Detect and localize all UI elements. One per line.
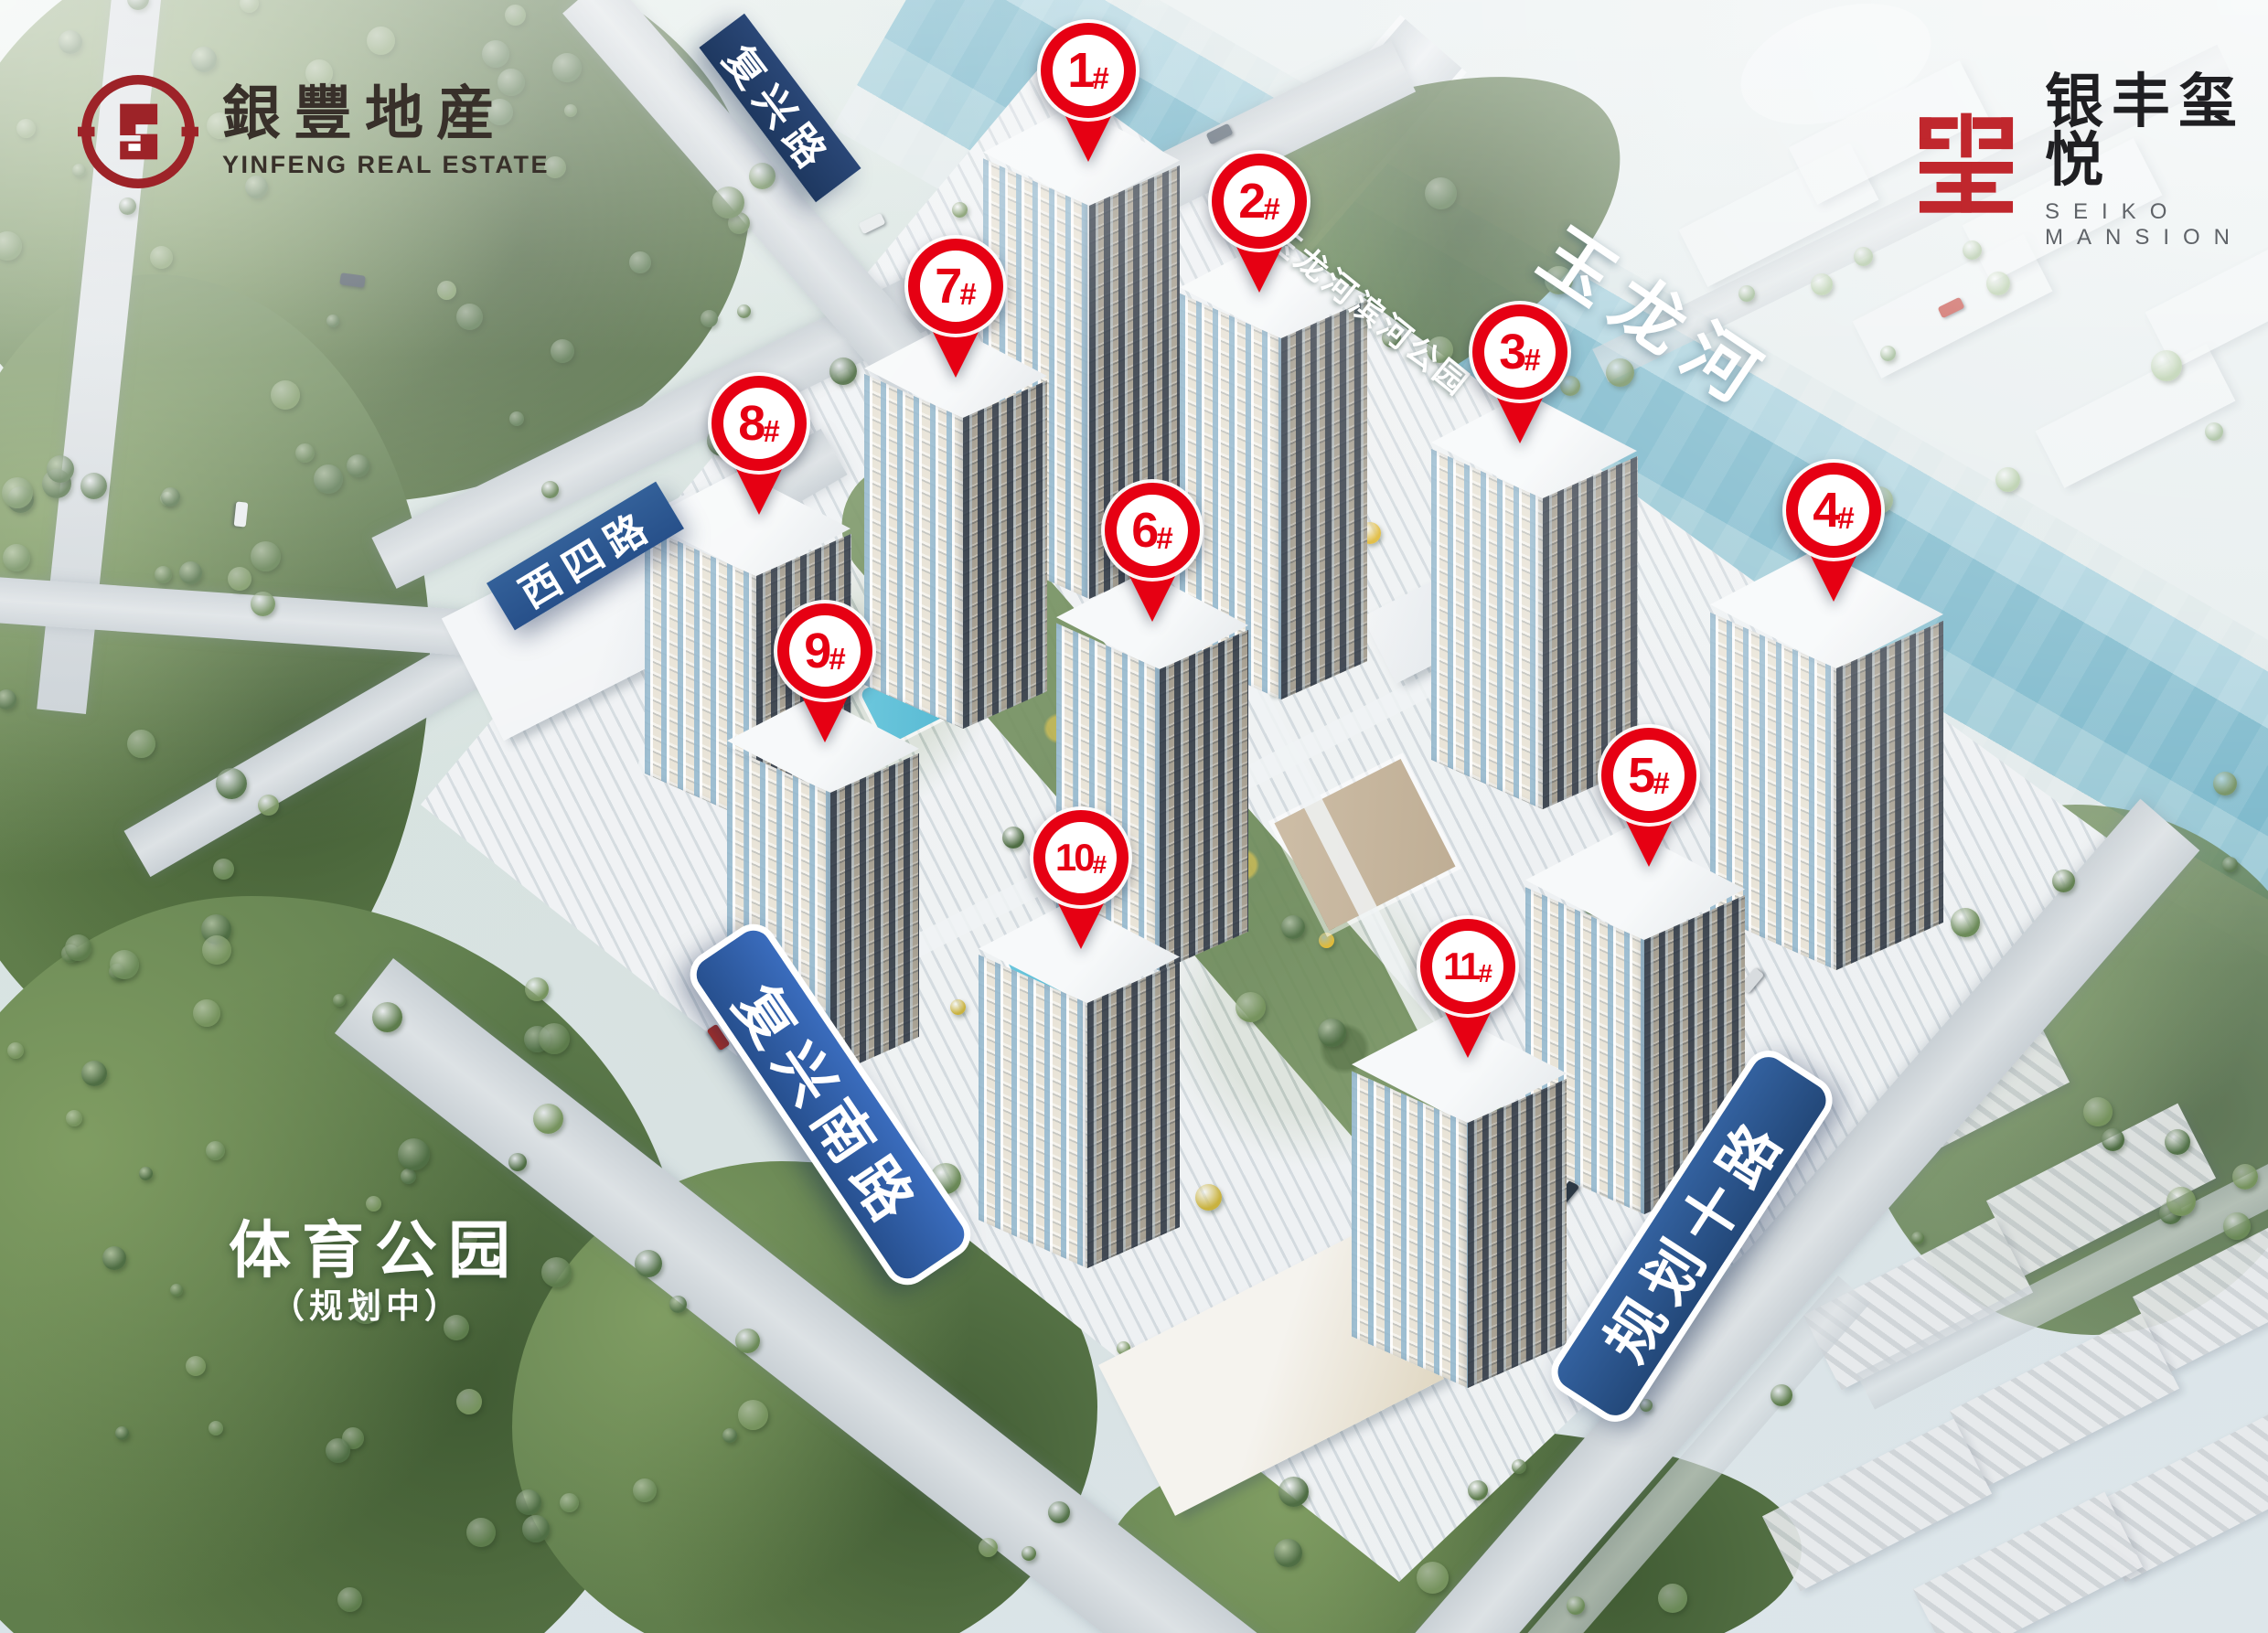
tree	[505, 5, 526, 26]
tree	[119, 197, 136, 215]
tree	[2, 477, 33, 508]
tree	[1811, 273, 1833, 295]
tree	[1995, 467, 2020, 492]
tree	[633, 1478, 657, 1502]
building-pin-3[interactable]: 3#	[1472, 304, 1567, 449]
sports-park-label: 体育公园	[229, 1200, 521, 1290]
tree	[2083, 1097, 2113, 1126]
tree	[1425, 177, 1457, 209]
building-pin-7[interactable]: 7#	[908, 239, 1003, 383]
tower-facade-right	[1281, 300, 1367, 699]
tower-facade-right	[1087, 962, 1180, 1268]
pin-hash-suffix: #	[1156, 523, 1172, 553]
tree	[213, 859, 234, 880]
tree	[1236, 992, 1266, 1022]
tree	[952, 202, 968, 218]
tower-facade-left	[1431, 449, 1543, 809]
tree	[456, 304, 483, 330]
tree	[251, 592, 275, 616]
pin-hash-suffix: #	[1093, 852, 1107, 878]
tree	[1854, 247, 1873, 266]
tower-10	[979, 901, 1180, 1270]
tree	[533, 1104, 563, 1134]
tree	[437, 281, 456, 300]
tower-facade-right	[1468, 1079, 1567, 1388]
tree	[179, 561, 202, 584]
tree	[1606, 358, 1634, 387]
tree	[81, 1061, 107, 1086]
building-pin-8[interactable]: 8#	[711, 376, 807, 520]
tree	[1512, 1459, 1526, 1474]
building-pin-11[interactable]: 11#	[1420, 919, 1515, 1063]
tree	[1911, 1232, 1924, 1244]
tree	[466, 1518, 496, 1547]
pin-hash-suffix: #	[1524, 345, 1540, 375]
building-pin-label: 1#	[1067, 46, 1108, 95]
tower-facade	[979, 1003, 1180, 1268]
tree	[2232, 1164, 2258, 1190]
tree	[206, 1141, 225, 1160]
pin-number: 7	[935, 261, 959, 311]
tree	[66, 1110, 82, 1126]
pin-circle: 5#	[1601, 728, 1696, 823]
building-pin-6[interactable]: 6#	[1105, 483, 1200, 627]
tree	[749, 163, 776, 189]
tree	[2151, 350, 2182, 381]
pin-circle: 9#	[777, 603, 872, 699]
building-pin-label: 7#	[935, 261, 976, 311]
tree	[541, 1257, 572, 1287]
tree	[1771, 1384, 1792, 1406]
tree	[737, 304, 751, 318]
pin-number: 5	[1628, 751, 1653, 800]
pin-number: 1	[1067, 46, 1092, 95]
pin-number: 9	[804, 626, 829, 676]
tree	[2102, 1128, 2124, 1151]
aerial-masterplan-rendering: 复兴路 西四路 复兴南路 规划十路 玉龙河 玉龙河滨河公园 体育公园 （规划中）…	[0, 0, 2268, 1633]
tower-11	[1352, 1013, 1567, 1390]
building-pin-label: 5#	[1628, 751, 1669, 800]
tree	[669, 1296, 687, 1313]
building-pin-label: 2#	[1238, 176, 1279, 226]
building-pin-10[interactable]: 10#	[1033, 810, 1129, 955]
building-pin-label: 9#	[804, 626, 845, 676]
tree	[170, 1284, 183, 1297]
building-pin-label: 4#	[1813, 486, 1854, 535]
tree	[1880, 346, 1896, 361]
tree	[541, 481, 559, 498]
project-name-en: SEIKO MANSION	[2045, 199, 2268, 251]
tower-facade-right	[830, 753, 919, 1076]
building-pin-label: 8#	[738, 399, 779, 448]
tree	[65, 934, 91, 961]
pin-hash-suffix: #	[829, 644, 845, 674]
tree	[722, 1428, 737, 1443]
tree	[139, 1167, 153, 1180]
tree	[735, 1329, 760, 1353]
tree	[333, 994, 346, 1007]
tree	[251, 541, 281, 571]
tree	[2223, 1212, 2251, 1240]
tree	[712, 187, 744, 219]
tree	[629, 251, 651, 273]
building-pin-label: 6#	[1131, 506, 1172, 555]
tree	[2166, 1187, 2196, 1216]
tree	[1274, 1539, 1302, 1567]
tree	[564, 104, 577, 117]
pin-number: 6	[1131, 506, 1156, 555]
tree	[186, 1356, 206, 1376]
tree	[367, 27, 395, 55]
tree	[1738, 285, 1755, 302]
tree	[202, 935, 231, 965]
tree	[295, 443, 315, 463]
seiko-mansion-seal-icon	[1913, 109, 2019, 215]
building-pin-label: 11#	[1443, 946, 1492, 987]
tree	[1281, 915, 1305, 939]
tree	[314, 464, 343, 494]
tree	[1022, 1546, 1036, 1561]
tree	[1195, 1184, 1222, 1211]
tower-facade-right	[963, 380, 1047, 729]
tree	[155, 566, 172, 583]
tree	[1986, 272, 2010, 295]
project-logo: 银丰玺悦 SEIKO MANSION	[1913, 73, 2268, 251]
tree	[456, 1389, 482, 1414]
building-pin-2[interactable]: 2#	[1212, 154, 1307, 298]
tree	[1951, 908, 1980, 937]
tree	[508, 1153, 527, 1171]
tree	[1002, 827, 1024, 849]
tree	[516, 1489, 541, 1515]
tree	[47, 455, 74, 483]
tree	[398, 1138, 430, 1170]
pin-circle: 7#	[908, 239, 1003, 334]
tree	[522, 1515, 550, 1542]
pin-hash-suffix: #	[959, 279, 976, 309]
tree	[1567, 1596, 1585, 1615]
tree	[560, 1493, 579, 1512]
tree	[635, 1250, 662, 1277]
developer-name-cn: 銀豐地産	[222, 85, 550, 144]
pin-number: 3	[1499, 327, 1524, 377]
tree	[337, 1587, 362, 1612]
tower-facade-left	[864, 374, 963, 729]
tree	[738, 1400, 768, 1430]
tree	[1640, 1399, 1653, 1412]
pin-circle: 3#	[1472, 304, 1567, 400]
tower-7	[864, 325, 1047, 731]
tree	[552, 53, 582, 82]
tree	[701, 310, 718, 327]
tree	[950, 999, 966, 1015]
tree	[829, 358, 857, 385]
pin-circle: 10#	[1033, 810, 1129, 905]
tree	[1468, 1480, 1488, 1500]
pin-circle: 4#	[1786, 463, 1881, 558]
pin-circle: 1#	[1041, 23, 1136, 118]
project-name-cn: 银丰玺悦	[2045, 73, 2268, 190]
tree	[1417, 1562, 1449, 1594]
pin-circle: 2#	[1212, 154, 1307, 249]
pin-number: 4	[1813, 486, 1837, 535]
developer-name-en: YINFENG REAL ESTATE	[222, 151, 550, 179]
tree	[326, 1438, 350, 1463]
tree	[191, 47, 217, 72]
pin-number: 10	[1055, 838, 1093, 877]
pin-hash-suffix: #	[763, 416, 779, 446]
sports-park-status-label: （规划中）	[271, 1278, 463, 1328]
pin-number: 8	[738, 399, 763, 448]
tree	[482, 40, 509, 68]
tree	[347, 454, 369, 477]
developer-logo: 銀豐地産 YINFENG REAL ESTATE	[78, 71, 550, 192]
building-pin-5[interactable]: 5#	[1601, 728, 1696, 872]
tree	[271, 380, 300, 410]
tree	[1278, 1477, 1309, 1507]
tower-facade-left	[1352, 1072, 1468, 1388]
building-pin-label: 3#	[1499, 327, 1540, 377]
tower-facade-right	[1836, 621, 1943, 970]
pin-hash-suffix: #	[1653, 768, 1669, 798]
tree	[16, 119, 36, 138]
tree	[539, 1023, 570, 1054]
tree	[115, 1426, 129, 1440]
tower-facade-left	[979, 955, 1087, 1268]
tree	[193, 999, 220, 1027]
tree	[7, 1042, 24, 1059]
tree	[2222, 857, 2238, 872]
tree	[401, 1169, 416, 1184]
building-pin-4[interactable]: 4#	[1786, 463, 1881, 607]
tree	[59, 30, 82, 54]
tree	[1319, 933, 1334, 948]
tree	[110, 950, 139, 979]
tree	[228, 567, 251, 591]
pin-hash-suffix: #	[1092, 63, 1108, 93]
tree	[1048, 1501, 1070, 1523]
tree	[1658, 1584, 1687, 1613]
tree	[209, 1421, 223, 1436]
building-pin-label: 10#	[1055, 838, 1107, 878]
tree	[216, 768, 247, 799]
building-pin-1[interactable]: 1#	[1041, 23, 1136, 167]
pin-number: 11	[1443, 947, 1478, 986]
pin-hash-suffix: #	[1478, 961, 1492, 987]
pin-circle: 8#	[711, 376, 807, 471]
pin-hash-suffix: #	[1837, 503, 1854, 533]
pin-hash-suffix: #	[1263, 194, 1279, 224]
tree	[127, 730, 155, 758]
tower-facade	[864, 418, 1047, 729]
pin-circle: 11#	[1420, 919, 1515, 1014]
tree	[551, 339, 574, 363]
tree	[150, 246, 173, 269]
yinfeng-seal-icon	[78, 71, 198, 192]
tree	[161, 487, 180, 507]
pin-circle: 6#	[1105, 483, 1200, 578]
tree	[372, 1002, 402, 1032]
tree	[979, 1538, 998, 1557]
tree	[525, 977, 549, 1001]
tree	[3, 544, 30, 571]
tree	[80, 473, 107, 499]
pin-number: 2	[1238, 176, 1263, 226]
tree	[509, 411, 524, 426]
tree	[2165, 1129, 2190, 1155]
tower-facade	[1352, 1123, 1567, 1388]
tree	[2052, 870, 2075, 892]
tree	[102, 1246, 126, 1270]
tree	[2205, 422, 2223, 441]
tree	[326, 315, 339, 327]
building-pin-9[interactable]: 9#	[777, 603, 872, 748]
tree	[1318, 1019, 1346, 1047]
tree	[2213, 772, 2237, 795]
tree	[258, 795, 279, 816]
